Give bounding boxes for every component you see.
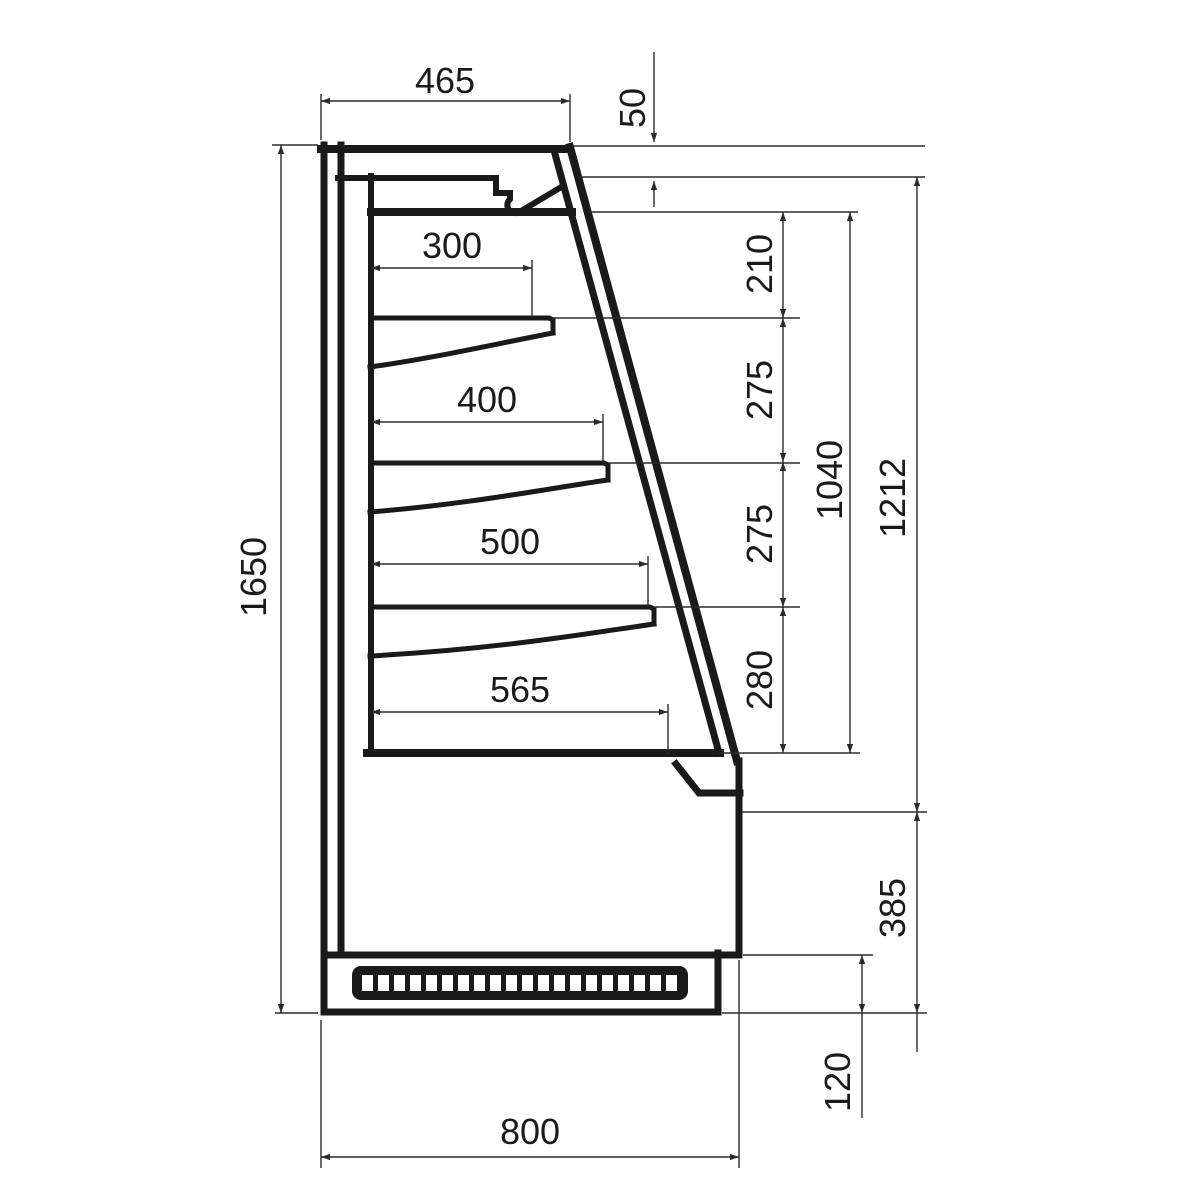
dim-label-shelf2-depth: 400 bbox=[457, 379, 517, 420]
shelf-3-surface bbox=[371, 607, 654, 624]
dim-label-shelf1-depth: 300 bbox=[422, 225, 482, 266]
front-glass-inner-slope bbox=[555, 154, 719, 753]
drawing-canvas: 465 50 1650 300 400 500 565 210 275 275 … bbox=[0, 0, 1200, 1200]
dim-label-gap-shelf1-shelf2: 275 bbox=[739, 360, 780, 420]
shelf-1 bbox=[370, 318, 553, 367]
dim-label-front-height: 1212 bbox=[872, 458, 913, 538]
plinth-vent-grille bbox=[352, 966, 688, 1000]
dim-label-base-height: 385 bbox=[872, 878, 913, 938]
dim-label-shelf3-depth: 500 bbox=[480, 521, 540, 562]
dim-label-deck-depth: 565 bbox=[490, 669, 550, 710]
front-bumper-notch bbox=[676, 764, 740, 793]
shelf-1-bracket-curve bbox=[370, 333, 553, 367]
dim-label-gap-shelf2-shelf3: 275 bbox=[739, 504, 780, 564]
shelf-3-bracket-curve bbox=[370, 624, 654, 656]
dim-label-gap-canopy-shelf1: 210 bbox=[739, 234, 780, 294]
cabinet-section-drawing: 465 50 1650 300 400 500 565 210 275 275 … bbox=[0, 0, 1200, 1200]
dim-label-interior-height: 1040 bbox=[809, 440, 850, 520]
cabinet-structure bbox=[321, 145, 740, 1012]
shelf-1-surface bbox=[371, 318, 553, 333]
shelf-2 bbox=[370, 463, 608, 512]
dim-label-plinth-height: 120 bbox=[817, 1052, 858, 1112]
shelf-2-surface bbox=[371, 463, 608, 480]
dim-label-gap-shelf3-deck: 280 bbox=[739, 650, 780, 710]
dim-label-depth-overall: 800 bbox=[500, 1111, 560, 1152]
front-glass-outer-slope bbox=[570, 147, 737, 761]
shelf-3 bbox=[370, 607, 654, 656]
dim-label-width-top: 465 bbox=[415, 60, 475, 101]
dim-label-height-overall: 1650 bbox=[233, 537, 274, 617]
dim-label-canopy-drop: 50 bbox=[612, 88, 653, 128]
shelf-2-bracket-curve bbox=[370, 480, 608, 512]
